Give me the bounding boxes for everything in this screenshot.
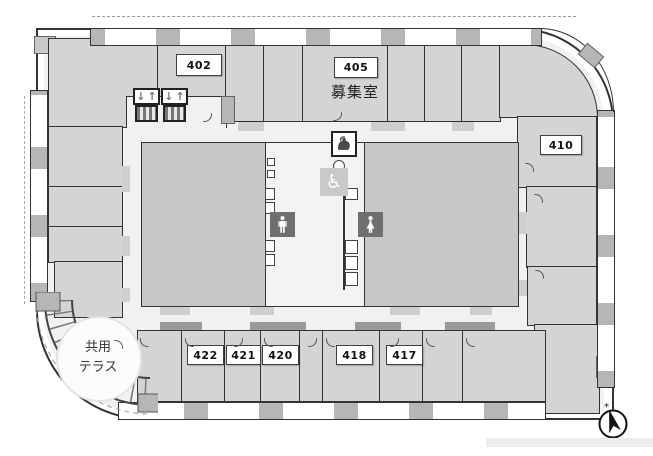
toilet-fixture [265,240,275,252]
room-label-420-text: 420 [268,349,292,362]
core-wall [343,186,345,290]
floor-plan: ↓ ↑ ↓ ↑ 共用 テラス [0,0,653,456]
window-band-right [597,110,615,388]
main-room-east [364,142,519,307]
door-lintel [250,322,306,330]
wall-stub [519,212,527,234]
room-left-2 [48,186,123,228]
room-label-418: 418 [336,345,373,365]
balcony-dashed-line-left [24,96,25,304]
curved-band-top-right [540,28,614,112]
room-label-421: 421 [226,345,261,365]
elevator-down-arrow-icon: ↓ [164,90,173,103]
balcony-dashed-line [92,16,576,17]
elevator-down-arrow-icon: ↓ [136,90,145,103]
room-narrow-2 [263,44,304,122]
room-label-417: 417 [386,345,423,365]
room-narrow-5 [461,44,501,122]
room-label-420: 420 [262,345,299,365]
room-421 [224,330,262,402]
room-narrow-3 [387,44,426,122]
wall-stub [122,236,130,256]
room-label-421-text: 421 [231,349,255,362]
shadow-strip [486,438,653,447]
room-label-405-text: 405 [344,61,368,74]
room-label-422-text: 422 [193,349,217,362]
toilet-fixture [345,240,358,254]
toilet-fixture [265,188,275,200]
wall-stub [452,122,474,131]
toilet-fixture [267,158,275,166]
wall-stub [160,307,190,315]
toilet-fixture [267,170,275,178]
room-label-410-text: 410 [549,139,573,152]
room-label-402: 402 [176,54,222,76]
elevator-shaft-icon-2: ↓ ↑ [161,88,188,105]
womens-toilet-icon [358,212,383,237]
toilet-fixture [345,272,358,286]
wall-stub [470,307,492,315]
room-label-410: 410 [540,135,582,155]
elevator-car-icon-2 [163,105,186,122]
main-room-west [141,142,266,307]
toilet-fixture [265,254,275,266]
room-label-405: 405 [334,57,378,78]
room-label-402-text: 402 [187,59,211,72]
wall-stub [122,166,130,192]
toilet-fixture [345,256,358,270]
wall-stub [371,122,405,131]
wall-stub [390,307,420,315]
room-417 [379,330,424,402]
window-band-top [90,28,542,46]
elevator-up-arrow-icon: ↑ [176,90,185,103]
wall-stub [238,122,264,131]
room-label-417-text: 417 [392,349,416,362]
wheelchair-symbol: ♿ [325,171,342,193]
room-left-1 [48,126,123,188]
room-narrow-4 [424,44,463,122]
vacancy-room-label: 募集室 [331,81,379,102]
room-label-422: 422 [187,345,224,365]
wall-stub [519,280,527,296]
wall-stub [250,307,274,315]
kitchenette-icon [331,131,357,157]
shared-terrace-line2: テラス [64,358,132,378]
room-label-418-text: 418 [342,349,366,362]
window-band-left [30,90,48,302]
elevator-shaft-icon-1: ↓ ↑ [133,88,160,105]
lobby-column-block [221,96,235,124]
compass-mark: * [604,402,609,413]
door-lintel [445,322,495,330]
wall-stub [122,288,130,302]
accessible-toilet-icon: ♿ [320,168,348,196]
mens-toilet-icon [270,212,295,237]
door-lintel [160,322,202,330]
window-band-bottom [118,402,546,420]
elevator-up-arrow-icon: ↑ [148,90,157,103]
door-lintel [355,322,401,330]
room-left-3 [48,226,123,263]
elevator-car-icon-1 [135,105,158,122]
